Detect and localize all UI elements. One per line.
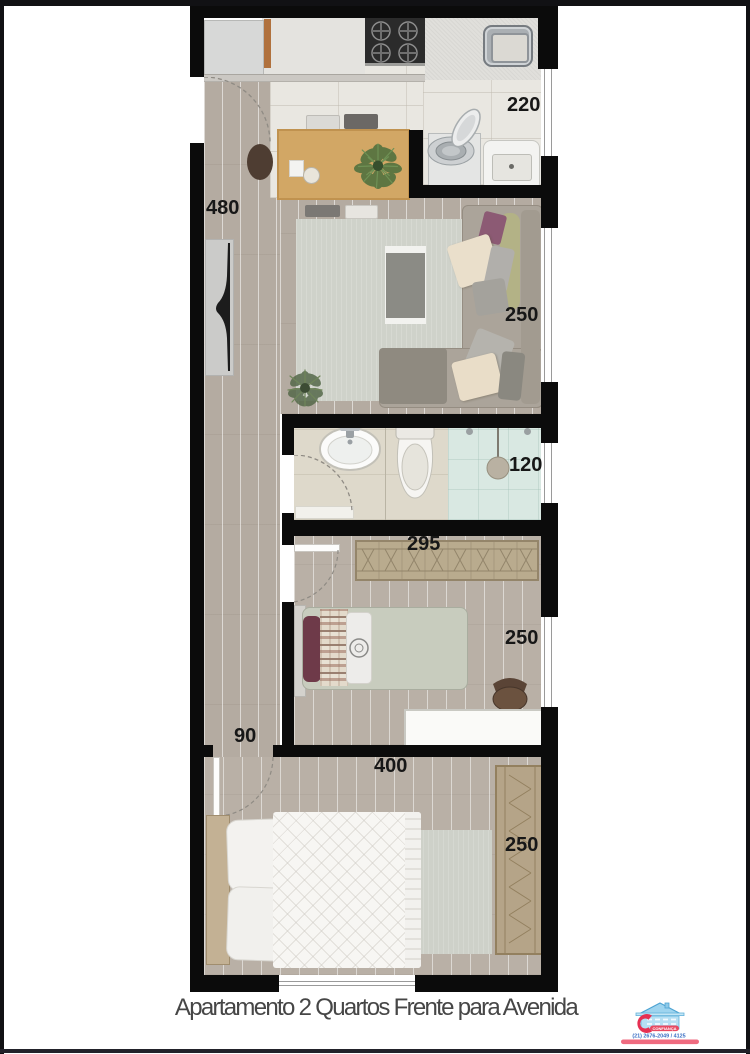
svg-text:CONFIANÇA: CONFIANÇA <box>653 1026 677 1031</box>
svg-text:(21) 2676-2049 / 4125: (21) 2676-2049 / 4125 <box>632 1034 685 1040</box>
